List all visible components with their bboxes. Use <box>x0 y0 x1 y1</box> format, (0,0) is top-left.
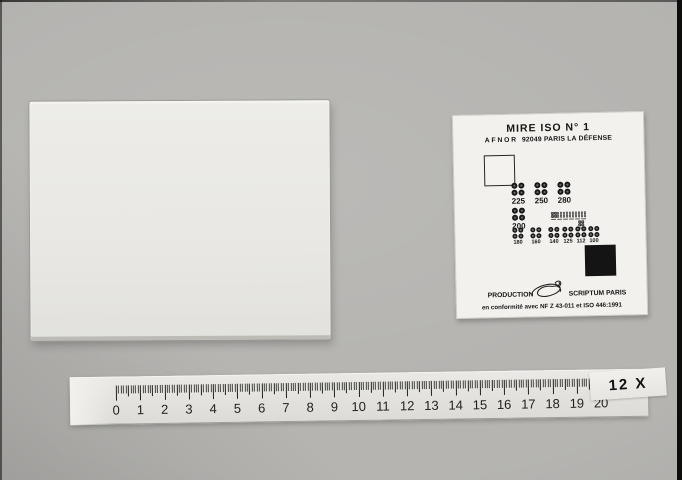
ruler-tick <box>431 381 432 396</box>
ruler-tick <box>383 382 384 397</box>
ruler-tick <box>215 384 216 392</box>
pattern-dot <box>575 232 580 237</box>
pattern-tiny-label <box>551 218 556 220</box>
pattern-dot <box>511 183 517 189</box>
pattern-dot <box>594 232 599 237</box>
ruler-tick <box>416 381 417 389</box>
ruler-tick <box>543 379 544 387</box>
ruler-tick <box>370 382 371 393</box>
ruler-tick <box>472 380 473 388</box>
ruler-tick <box>433 381 434 389</box>
ruler-tick <box>252 384 253 392</box>
ruler-strip: 01234567891011121314151617181920 <box>70 369 649 426</box>
ruler-tick <box>339 382 340 390</box>
ruler-tick <box>147 385 148 393</box>
resolution-pattern-group: 125 <box>562 227 573 245</box>
ruler-tick <box>329 382 330 390</box>
ruler-tick <box>206 384 207 392</box>
ruler-tick <box>443 381 444 392</box>
ruler-tick <box>504 380 505 395</box>
pattern-dot <box>519 190 525 196</box>
photo-stage: MIRE ISO N° 1 AFNOR92049 PARIS LA DÉFENS… <box>0 0 682 480</box>
ruler-tick <box>271 383 272 391</box>
resolution-pattern-group: 280 <box>557 182 571 205</box>
ruler-tick <box>145 385 146 393</box>
ruler-tick <box>123 385 124 393</box>
ruler-tick <box>269 383 270 391</box>
pattern-dot <box>548 233 553 238</box>
ruler-tick <box>395 381 396 392</box>
ruler-tick <box>176 385 177 396</box>
ruler-tick <box>256 384 257 392</box>
ruler-number: 0 <box>112 403 119 418</box>
ruler-tick <box>344 382 345 390</box>
ruler-tick <box>133 385 134 393</box>
ruler-tick <box>501 380 502 388</box>
ruler-tick <box>363 382 364 390</box>
ruler-tick <box>419 381 420 392</box>
pattern-dot <box>542 189 548 195</box>
pattern-value-label: 250 <box>535 196 549 205</box>
ruler-tick <box>281 383 282 391</box>
ruler-tick <box>361 382 362 390</box>
resolution-pattern-group: 160 <box>530 227 541 245</box>
ruler-tick <box>341 382 342 390</box>
ruler-tick <box>579 379 580 387</box>
ruler-tick <box>540 379 541 390</box>
ruler-tick <box>303 383 304 391</box>
ruler-number: 6 <box>258 400 265 415</box>
ruler-tick <box>239 384 240 392</box>
ruler-tick <box>157 385 158 393</box>
ruler-tick <box>349 382 350 390</box>
ruler-tick <box>484 380 485 388</box>
ruler-tick <box>351 382 352 390</box>
ruler-tick <box>169 385 170 393</box>
pattern-dots <box>578 220 584 226</box>
ruler-tick <box>455 381 456 396</box>
resolution-pattern-group <box>580 211 586 219</box>
pattern-dot <box>518 234 523 239</box>
ruler-tick <box>286 383 287 398</box>
ruler-tick <box>237 384 238 399</box>
ruler-tick <box>487 380 488 388</box>
ruler-tick <box>438 381 439 389</box>
pattern-dot <box>581 232 586 237</box>
pattern-dots <box>563 212 569 218</box>
ruler-tick <box>142 385 143 393</box>
pattern-dot <box>588 232 593 237</box>
ruler-tick <box>305 383 306 391</box>
ruler-tick <box>317 383 318 391</box>
ruler-tick <box>138 385 139 393</box>
ruler-tick <box>358 382 359 397</box>
ruler-tick <box>152 385 153 396</box>
ruler-tick <box>530 379 531 387</box>
pattern-dots <box>534 182 547 195</box>
ruler-tick <box>210 384 211 392</box>
pattern-value-label: 280 <box>558 196 572 205</box>
ruler-tick <box>448 381 449 389</box>
ruler-number: 13 <box>424 398 439 413</box>
ruler-tick <box>315 383 316 391</box>
pattern-tiny-label <box>569 218 574 220</box>
ruler-tick <box>475 380 476 388</box>
ruler-tick <box>467 380 468 391</box>
ruler-tick <box>380 382 381 390</box>
ruler-tick <box>560 379 561 387</box>
ruler-tick <box>547 379 548 387</box>
ruler-tick <box>477 380 478 388</box>
resolution-pattern-group: 100 <box>588 226 599 244</box>
ruler-tick <box>186 385 187 393</box>
resolution-pattern-group: 112 <box>575 226 586 244</box>
resolution-pattern-group: 250 <box>534 182 548 205</box>
ruler-number: 1 <box>137 402 144 417</box>
pattern-dots <box>548 227 559 238</box>
ruler-tick <box>327 382 328 390</box>
ruler-tick <box>244 384 245 392</box>
pattern-dot <box>535 189 541 195</box>
pattern-dots <box>575 226 586 237</box>
ruler-tick <box>518 380 519 388</box>
ruler-tick <box>538 379 539 387</box>
pattern-dot <box>563 215 566 218</box>
ruler-tick <box>407 381 408 396</box>
ruler-tick <box>300 383 301 391</box>
ruler-tick <box>295 383 296 391</box>
ruler-number: 2 <box>161 402 168 417</box>
pattern-dot <box>536 233 541 238</box>
ruler-tick <box>404 381 405 389</box>
ruler-tick <box>470 380 471 388</box>
ruler-tick <box>494 380 495 388</box>
ruler-number: 17 <box>521 396 536 411</box>
pattern-dot <box>530 227 535 232</box>
ruler-number: 3 <box>185 401 192 416</box>
pattern-dots <box>588 226 599 237</box>
pattern-dot <box>562 227 567 232</box>
ruler-tick <box>492 380 493 391</box>
ruler-tick <box>298 383 299 394</box>
pattern-tiny-label <box>563 218 568 220</box>
ruler-tick <box>499 380 500 388</box>
ruler-tick <box>346 382 347 393</box>
pattern-dot <box>536 227 541 232</box>
ruler-tick <box>128 385 129 396</box>
ruler-tick <box>264 383 265 391</box>
ruler-number: 9 <box>331 399 338 414</box>
ruler-tick <box>174 385 175 393</box>
ruler-tick <box>227 384 228 392</box>
resolution-pattern-group <box>551 212 557 220</box>
ruler-tick <box>218 384 219 392</box>
ruler-tick <box>480 380 481 395</box>
ruler-tick <box>385 382 386 390</box>
ruler-tick <box>247 384 248 392</box>
blank-white-card <box>29 100 330 341</box>
pattern-dots <box>575 211 581 217</box>
ruler-tick <box>460 380 461 388</box>
ruler-number: 12 <box>400 398 415 413</box>
ruler-tick <box>266 383 267 391</box>
resolution-pattern-group <box>569 211 575 219</box>
ruler-tick <box>436 381 437 389</box>
ruler-tick <box>181 385 182 393</box>
ruler-tick <box>276 383 277 391</box>
pattern-dots <box>569 211 575 217</box>
ruler-tick <box>552 379 553 394</box>
ruler-tick <box>125 385 126 393</box>
pattern-dot <box>519 208 525 214</box>
pattern-dot <box>518 228 523 233</box>
ruler-tick <box>453 381 454 389</box>
pattern-tiny-label <box>557 218 562 220</box>
ruler-tick <box>283 383 284 391</box>
ruler-tick <box>574 379 575 387</box>
photo-edge-right <box>677 0 682 480</box>
ruler-tick <box>184 385 185 393</box>
ruler-number: 16 <box>497 397 512 412</box>
ruler-tick <box>225 384 226 395</box>
scriptum-logo-icon <box>527 278 565 303</box>
ruler-number: 10 <box>351 399 366 414</box>
ruler-number: 7 <box>282 400 289 415</box>
pattern-dot <box>557 182 563 188</box>
ruler-tick <box>511 380 512 388</box>
ruler-tick <box>196 384 197 392</box>
ruler-tick <box>259 383 260 391</box>
ruler-tick <box>390 382 391 390</box>
ruler-tick <box>191 384 192 392</box>
pattern-dot <box>575 214 578 217</box>
ruler-tick <box>193 384 194 392</box>
ruler-tick <box>356 382 357 390</box>
ruler-tick <box>278 383 279 391</box>
pattern-dot <box>564 182 570 188</box>
ruler-tick <box>584 379 585 387</box>
pattern-dot <box>568 227 573 232</box>
ruler-tick <box>523 380 524 388</box>
ruler-tick <box>567 379 568 387</box>
ruler-tick <box>319 383 320 391</box>
ruler-tick <box>581 379 582 387</box>
ruler-ticks: 01234567891011121314151617181920 <box>116 378 616 421</box>
ruler-tick <box>562 379 563 387</box>
pattern-dot <box>512 215 518 221</box>
pattern-value-label: 100 <box>589 237 598 243</box>
ruler-tick <box>121 386 122 394</box>
pattern-dot <box>575 226 580 231</box>
pattern-dot <box>548 227 553 232</box>
magnification-label-strip: 12 X <box>589 367 667 400</box>
ruler-tick <box>586 379 587 387</box>
ruler-tick <box>424 381 425 389</box>
ruler-tick <box>307 383 308 391</box>
pattern-dots <box>580 211 586 217</box>
ruler-tick <box>150 385 151 393</box>
resolution-pattern-group: 225 <box>511 183 525 206</box>
ruler-tick <box>555 379 556 387</box>
ruler-tick <box>513 380 514 388</box>
pattern-dot <box>558 189 564 195</box>
ruler-tick <box>526 380 527 388</box>
photo-edge-top <box>0 0 682 2</box>
ruler-number: 14 <box>448 397 463 412</box>
pattern-dot <box>541 182 547 188</box>
ruler-tick <box>489 380 490 388</box>
pattern-dot <box>519 215 525 221</box>
pattern-dot <box>534 182 540 188</box>
ruler-tick <box>446 381 447 389</box>
pattern-dots <box>511 183 524 196</box>
ruler-tick <box>577 379 578 394</box>
ruler-tick <box>273 383 274 394</box>
ruler-tick <box>118 386 119 394</box>
resolution-pattern-group <box>575 211 581 219</box>
ruler-tick <box>254 384 255 392</box>
pattern-dot <box>565 189 571 195</box>
pattern-dot <box>554 233 559 238</box>
ruler-tick <box>310 383 311 398</box>
ruler-number: 5 <box>234 401 241 416</box>
ruler-tick <box>506 380 507 388</box>
ruler-tick <box>516 380 517 391</box>
ruler-tick <box>164 385 165 400</box>
ruler-tick <box>482 380 483 388</box>
pattern-dot <box>569 215 572 218</box>
ruler-tick <box>222 384 223 392</box>
ruler-tick <box>496 380 497 388</box>
ruler-tick <box>242 384 243 392</box>
ruler-tick <box>220 384 221 392</box>
magnification-text: 12 X <box>608 374 648 394</box>
pattern-value-label: 160 <box>531 239 540 245</box>
ruler-number: 8 <box>306 400 313 415</box>
ruler-tick <box>441 381 442 389</box>
ruler-tick <box>130 385 131 393</box>
pattern-value-label: 140 <box>549 238 558 244</box>
ruler-tick <box>179 385 180 393</box>
ruler-tick <box>140 385 141 400</box>
ruler-tick <box>312 383 313 391</box>
ruler-tick <box>545 379 546 387</box>
ruler-tick <box>373 382 374 390</box>
ruler-tick <box>159 385 160 393</box>
ruler-tick <box>324 382 325 390</box>
pattern-dots <box>551 212 557 218</box>
ruler-tick <box>366 382 367 390</box>
ruler-tick <box>116 386 117 401</box>
ruler-tick <box>189 385 190 400</box>
ruler-tick <box>421 381 422 389</box>
ruler-number: 11 <box>376 399 390 414</box>
pattern-dots <box>530 227 541 238</box>
ruler-tick <box>375 382 376 390</box>
photo-edge-left <box>0 0 2 480</box>
ruler-tick <box>463 380 464 388</box>
ruler-tick <box>162 385 163 393</box>
producer-label: SCRIPTUM PARIS <box>569 289 627 297</box>
ruler-tick <box>213 384 214 399</box>
ruler-tick <box>414 381 415 389</box>
ruler-tick <box>288 383 289 391</box>
ruler-tick <box>249 384 250 395</box>
ruler-number: 19 <box>570 396 585 411</box>
pattern-dot <box>518 183 524 189</box>
resolution-pattern-group: 180 <box>512 228 523 246</box>
ruler-tick <box>378 382 379 390</box>
pattern-dots <box>557 212 563 218</box>
ruler-tick <box>387 382 388 390</box>
ruler-tick <box>353 382 354 390</box>
ruler-tick <box>550 379 551 387</box>
ruler-tick <box>201 384 202 395</box>
ruler-tick <box>208 384 209 392</box>
pattern-dot <box>568 233 573 238</box>
pattern-dot <box>512 190 518 196</box>
ruler-tick <box>528 379 529 394</box>
pattern-dot <box>588 226 593 231</box>
ruler-tick <box>322 383 323 394</box>
ruler-tick <box>198 384 199 392</box>
pattern-dot <box>530 233 535 238</box>
ruler-tick <box>172 385 173 393</box>
ruler-tick <box>569 379 570 387</box>
ruler-tick <box>458 381 459 389</box>
ruler-tick <box>290 383 291 391</box>
pattern-value-label: 225 <box>512 197 526 206</box>
pattern-dot <box>594 226 599 231</box>
ruler-tick <box>135 385 136 393</box>
ruler-tick <box>535 379 536 387</box>
ruler-number: 15 <box>473 397 488 412</box>
ruler-tick <box>557 379 558 387</box>
ruler-tick <box>230 384 231 392</box>
mire-iso-test-chart: MIRE ISO N° 1 AFNOR92049 PARIS LA DÉFENS… <box>452 111 648 319</box>
ruler-tick <box>392 381 393 389</box>
ruler-tick <box>465 380 466 388</box>
pattern-dot <box>512 228 517 233</box>
ruler-number: 4 <box>209 401 216 416</box>
pattern-dot <box>512 234 517 239</box>
ruler-tick <box>332 382 333 390</box>
pattern-dots <box>512 228 523 239</box>
pattern-dots <box>512 208 525 221</box>
ruler-tick <box>293 383 294 391</box>
ruler-tick <box>167 385 168 393</box>
ruler-tick <box>533 379 534 387</box>
pattern-dots <box>557 182 570 195</box>
production-label: PRODUCTION <box>488 291 534 299</box>
resolution-pattern-group: 140 <box>548 227 559 245</box>
ruler-tick <box>399 381 400 389</box>
ruler-tick <box>429 381 430 389</box>
ruler-tick <box>402 381 403 389</box>
ruler-number: 18 <box>545 396 560 411</box>
ruler-tick <box>203 384 204 392</box>
pattern-dot <box>581 226 586 231</box>
ruler-tick <box>334 382 335 397</box>
pattern-value-label: 125 <box>563 238 572 244</box>
ruler-tick <box>232 384 233 392</box>
ruler-tick <box>409 381 410 389</box>
ruler-tick <box>564 379 565 390</box>
pattern-dot <box>583 214 586 217</box>
ruler-tick <box>450 381 451 389</box>
pattern-dot <box>562 233 567 238</box>
pattern-value-label: 112 <box>577 238 586 244</box>
